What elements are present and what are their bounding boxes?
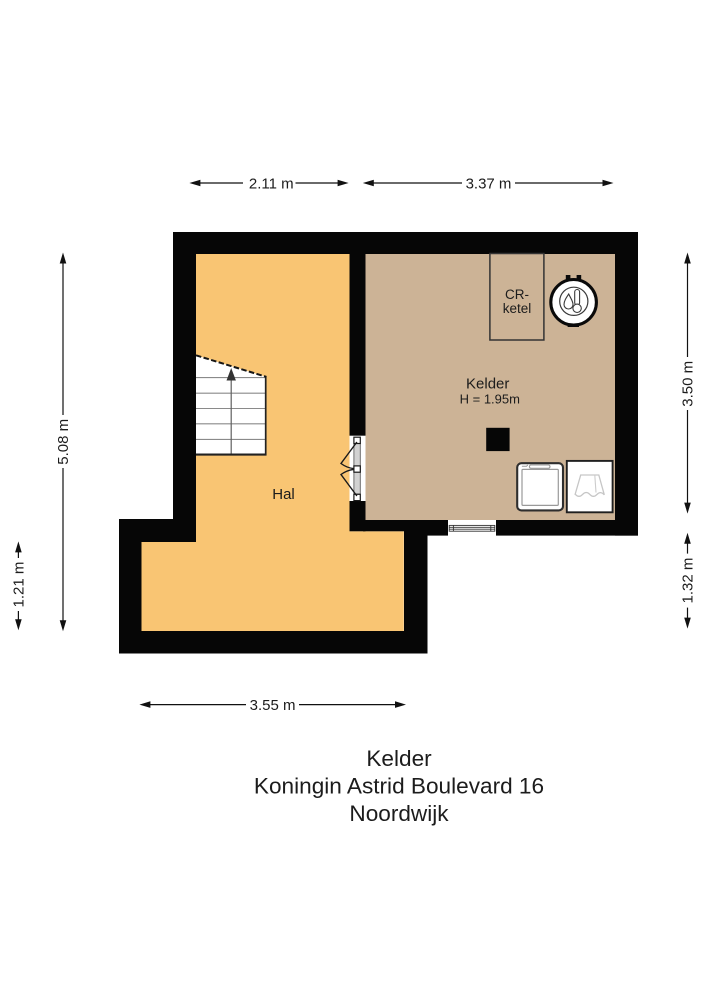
svg-text:Kelder: Kelder <box>366 746 432 771</box>
svg-text:2.11 m: 2.11 m <box>249 175 294 192</box>
svg-text:3.55 m: 3.55 m <box>250 697 296 714</box>
svg-text:H = 1.95m: H = 1.95m <box>460 391 520 406</box>
svg-text:Koningin Astrid Boulevard 16: Koningin Astrid Boulevard 16 <box>254 773 544 798</box>
svg-text:1.32 m: 1.32 m <box>680 558 697 604</box>
svg-text:Kelder: Kelder <box>466 375 509 392</box>
svg-text:3.50 m: 3.50 m <box>680 361 697 407</box>
svg-text:5.08 m: 5.08 m <box>55 419 72 465</box>
svg-text:1.21 m: 1.21 m <box>10 562 27 608</box>
svg-text:3.37 m: 3.37 m <box>466 175 512 192</box>
svg-text:Hal: Hal <box>272 486 295 503</box>
svg-text:CR-: CR- <box>505 287 529 302</box>
svg-text:Noordwijk: Noordwijk <box>349 801 449 826</box>
svg-text:ketel: ketel <box>503 301 532 316</box>
